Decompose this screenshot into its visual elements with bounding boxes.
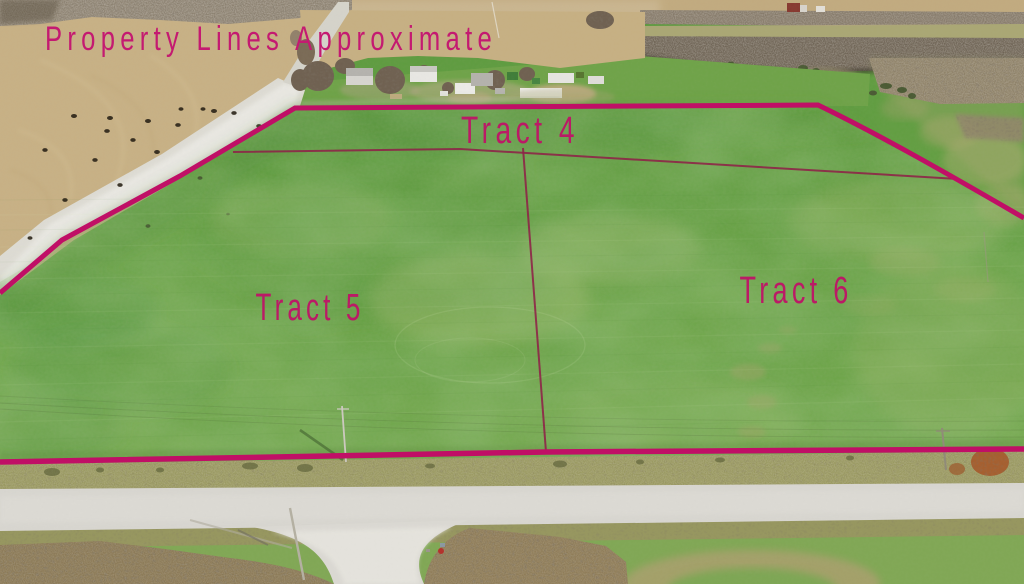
svg-text:Tract 4: Tract 4	[461, 110, 579, 152]
svg-text:Tract 5: Tract 5	[256, 287, 365, 329]
svg-text:Tract 6: Tract 6	[740, 270, 853, 312]
svg-text:Property Lines Approximate: Property Lines Approximate	[45, 20, 497, 58]
